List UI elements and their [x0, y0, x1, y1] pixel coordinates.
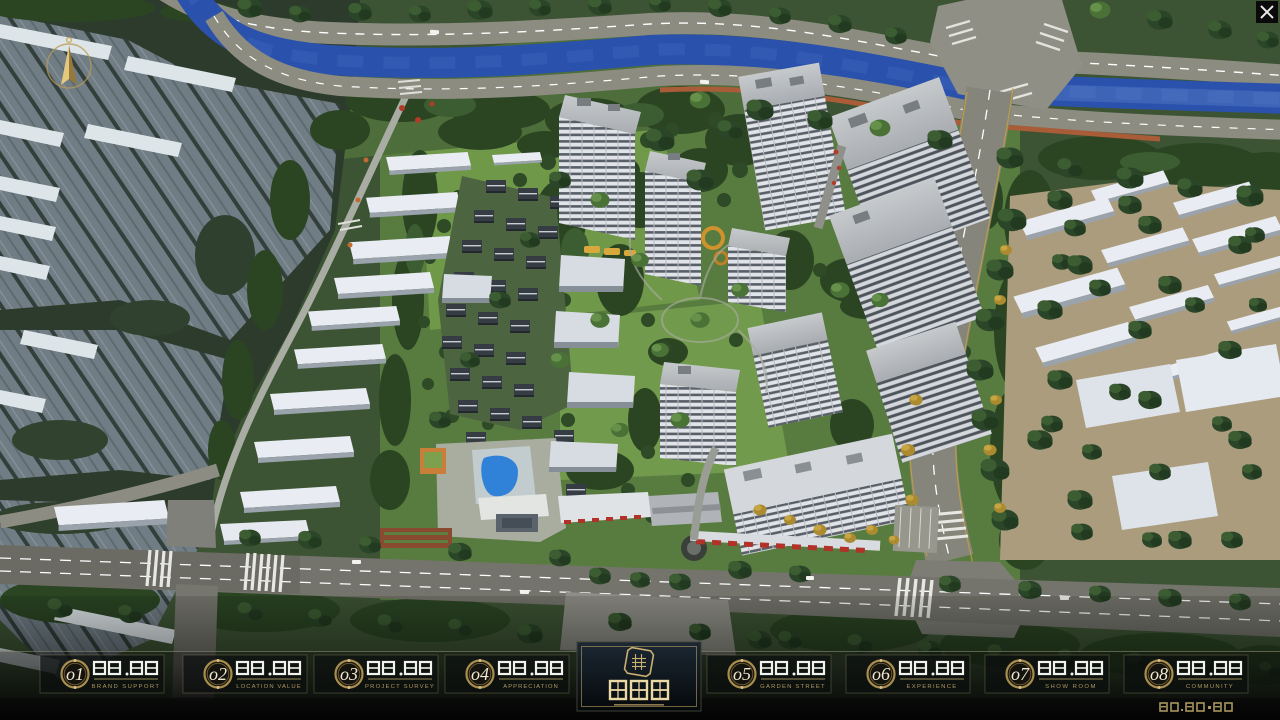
svg-text:PROJECT SURVEY: PROJECT SURVEY: [365, 684, 435, 690]
svg-text:SHOW ROOM: SHOW ROOM: [1045, 684, 1097, 690]
svg-text:o5: o5: [733, 664, 751, 684]
svg-text:o1: o1: [66, 664, 84, 684]
svg-text:APPRECIATION: APPRECIATION: [503, 684, 558, 690]
svg-text:GARDEN STREET: GARDEN STREET: [760, 684, 826, 690]
svg-text:o7: o7: [1011, 664, 1030, 684]
svg-text:o6: o6: [872, 664, 890, 684]
svg-text:BRAND SUPPORT: BRAND SUPPORT: [92, 684, 161, 690]
svg-text:LOCATION VALUE: LOCATION VALUE: [236, 684, 302, 690]
svg-text:o8: o8: [1150, 664, 1168, 684]
svg-text:o4: o4: [471, 664, 489, 684]
svg-text:EXPERIENCE: EXPERIENCE: [907, 684, 958, 690]
svg-text:o3: o3: [340, 664, 358, 684]
svg-text:o2: o2: [209, 664, 227, 684]
svg-text:COMMUNITY: COMMUNITY: [1186, 684, 1234, 690]
